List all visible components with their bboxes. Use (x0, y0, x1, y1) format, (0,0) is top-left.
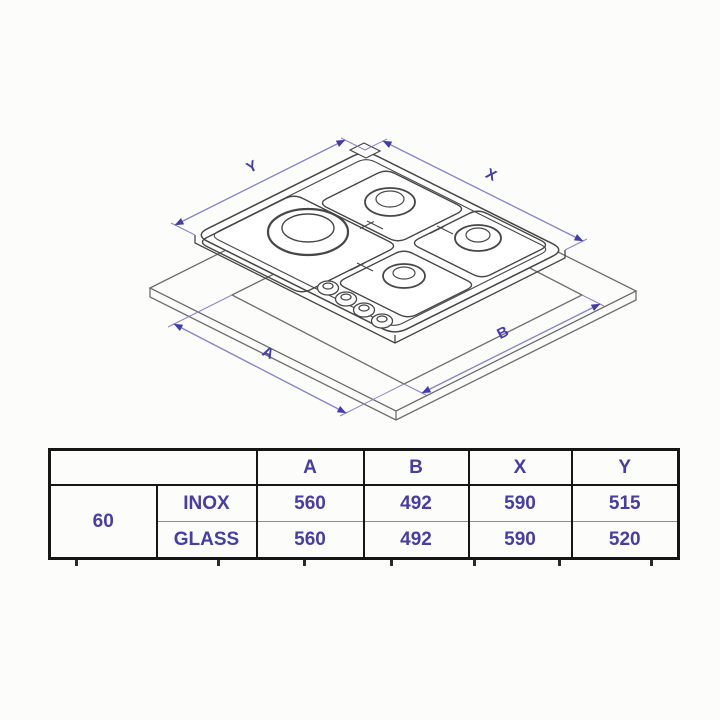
crop-stub (303, 560, 306, 566)
header-y: Y (572, 450, 679, 485)
dim-label-a: A (259, 343, 276, 363)
control-knob-cap (323, 283, 333, 289)
control-knob-cap (377, 316, 387, 322)
crop-stub (217, 560, 220, 566)
control-knob-cap (341, 294, 351, 300)
crop-stub (473, 560, 476, 566)
crop-stub (558, 560, 561, 566)
header-b: B (364, 450, 469, 485)
hob-installation-diagram: Y X A B (0, 0, 720, 450)
variant-glass-cell: GLASS (157, 522, 257, 559)
table-row: 60 INOX 560 492 590 515 (50, 485, 679, 522)
burner-right-outer (455, 225, 501, 251)
header-x: X (469, 450, 572, 485)
header-a: A (257, 450, 364, 485)
witness-line (582, 295, 604, 306)
inox-b-cell: 492 (364, 485, 469, 522)
dim-line-b (422, 304, 600, 393)
glass-b-cell: 492 (364, 522, 469, 559)
witness-line (171, 223, 195, 235)
glass-x-cell: 590 (469, 522, 572, 559)
crop-stub (390, 560, 393, 566)
glass-y-cell: 520 (572, 522, 679, 559)
burner-back-outer (365, 188, 415, 216)
variant-inox-cell: INOX (157, 485, 257, 522)
burner-large-outer (268, 209, 348, 255)
dim-label-x: X (483, 165, 500, 185)
inox-a-cell: 560 (257, 485, 364, 522)
witness-line (565, 239, 587, 250)
size-60-cell: 60 (50, 485, 157, 559)
hob-isometric-drawing: Y X A B (0, 0, 720, 450)
table-header-row: A B X Y (50, 450, 679, 485)
witness-line (340, 384, 404, 416)
glass-a-cell: 560 (257, 522, 364, 559)
page: Y X A B A B X Y 60 INOX (0, 0, 720, 720)
crop-stub (650, 560, 653, 566)
header-empty-cell (50, 450, 257, 485)
control-knob-cap (359, 305, 369, 311)
inox-x-cell: 590 (469, 485, 572, 522)
dimensions-table: A B X Y 60 INOX 560 492 590 515 GLASS 56… (48, 448, 680, 560)
inox-y-cell: 515 (572, 485, 679, 522)
dim-line-a (174, 324, 346, 413)
crop-stub (75, 560, 78, 566)
dim-label-y: Y (244, 157, 261, 177)
dim-label-b: B (494, 323, 511, 343)
